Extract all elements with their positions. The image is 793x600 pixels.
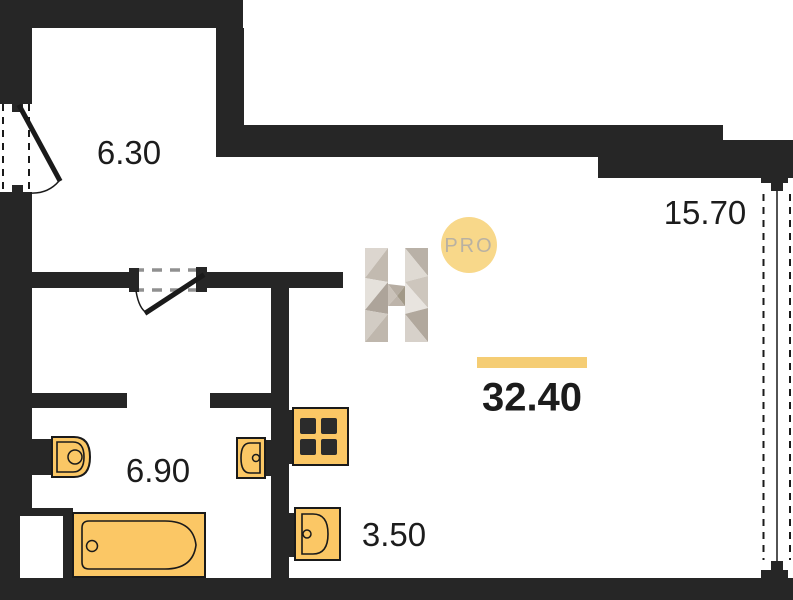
window-top-notch	[771, 183, 783, 191]
entry-door-latch-tab	[12, 185, 23, 193]
toilet-cistern	[31, 439, 52, 475]
bathtub-icon	[73, 513, 205, 577]
bathroom-door-swing-arc	[136, 291, 147, 313]
bathroom-door-jamb-left	[129, 268, 139, 292]
wall-left-mid	[0, 192, 32, 508]
floor-plan-canvas: H PRO	[0, 0, 793, 600]
total-area-label: 32.40	[482, 376, 582, 421]
brand-logo: H PRO	[365, 217, 497, 342]
bathroom-door	[129, 267, 207, 313]
panoramic-window	[761, 173, 790, 580]
entry-door-leaf	[20, 107, 59, 179]
hall-area-label: 6.30	[97, 134, 161, 172]
kitchen-area-label: 3.50	[362, 516, 426, 554]
toilet-icon	[31, 437, 90, 477]
wall-left-bottom	[0, 508, 20, 578]
wall-corner-right	[723, 140, 793, 178]
bathroom-sink-icon	[237, 438, 271, 478]
logo-h-glyph	[365, 248, 428, 342]
window-bottom-notch	[771, 561, 783, 570]
wall-niche-top	[20, 508, 73, 516]
wall-top-step	[598, 155, 723, 178]
wall-top-main	[216, 125, 723, 157]
stove-burner	[300, 418, 316, 434]
wall-bath-right	[271, 288, 289, 578]
kitchen-sink-icon	[287, 508, 340, 560]
pro-badge-label: PRO	[444, 235, 493, 257]
bathroom-area-label: 6.90	[126, 452, 190, 490]
wall-top-left	[0, 0, 243, 28]
wall-bath-stub-left	[0, 393, 127, 408]
wall-left-upper	[0, 0, 32, 104]
entry-door	[3, 104, 59, 193]
stove-burner	[321, 439, 337, 455]
floor-plan: H PRO 6.30 15	[0, 0, 793, 600]
stove-burner	[300, 439, 316, 455]
stove-icon	[287, 408, 348, 465]
window-bottom-tab	[761, 570, 788, 580]
wall-bottom	[0, 578, 793, 600]
total-area-underline	[477, 357, 587, 368]
entry-door-swing-arc	[30, 181, 59, 193]
stove-burner	[321, 418, 337, 434]
wall-bath-stub-right	[210, 393, 273, 408]
wall-niche-side	[63, 516, 73, 578]
window-top-tab	[761, 173, 788, 183]
wall-mid-right	[203, 272, 343, 288]
bathroom-door-leaf	[147, 276, 202, 312]
living-area-label: 15.70	[664, 194, 747, 232]
wall-mid-left	[32, 272, 133, 288]
